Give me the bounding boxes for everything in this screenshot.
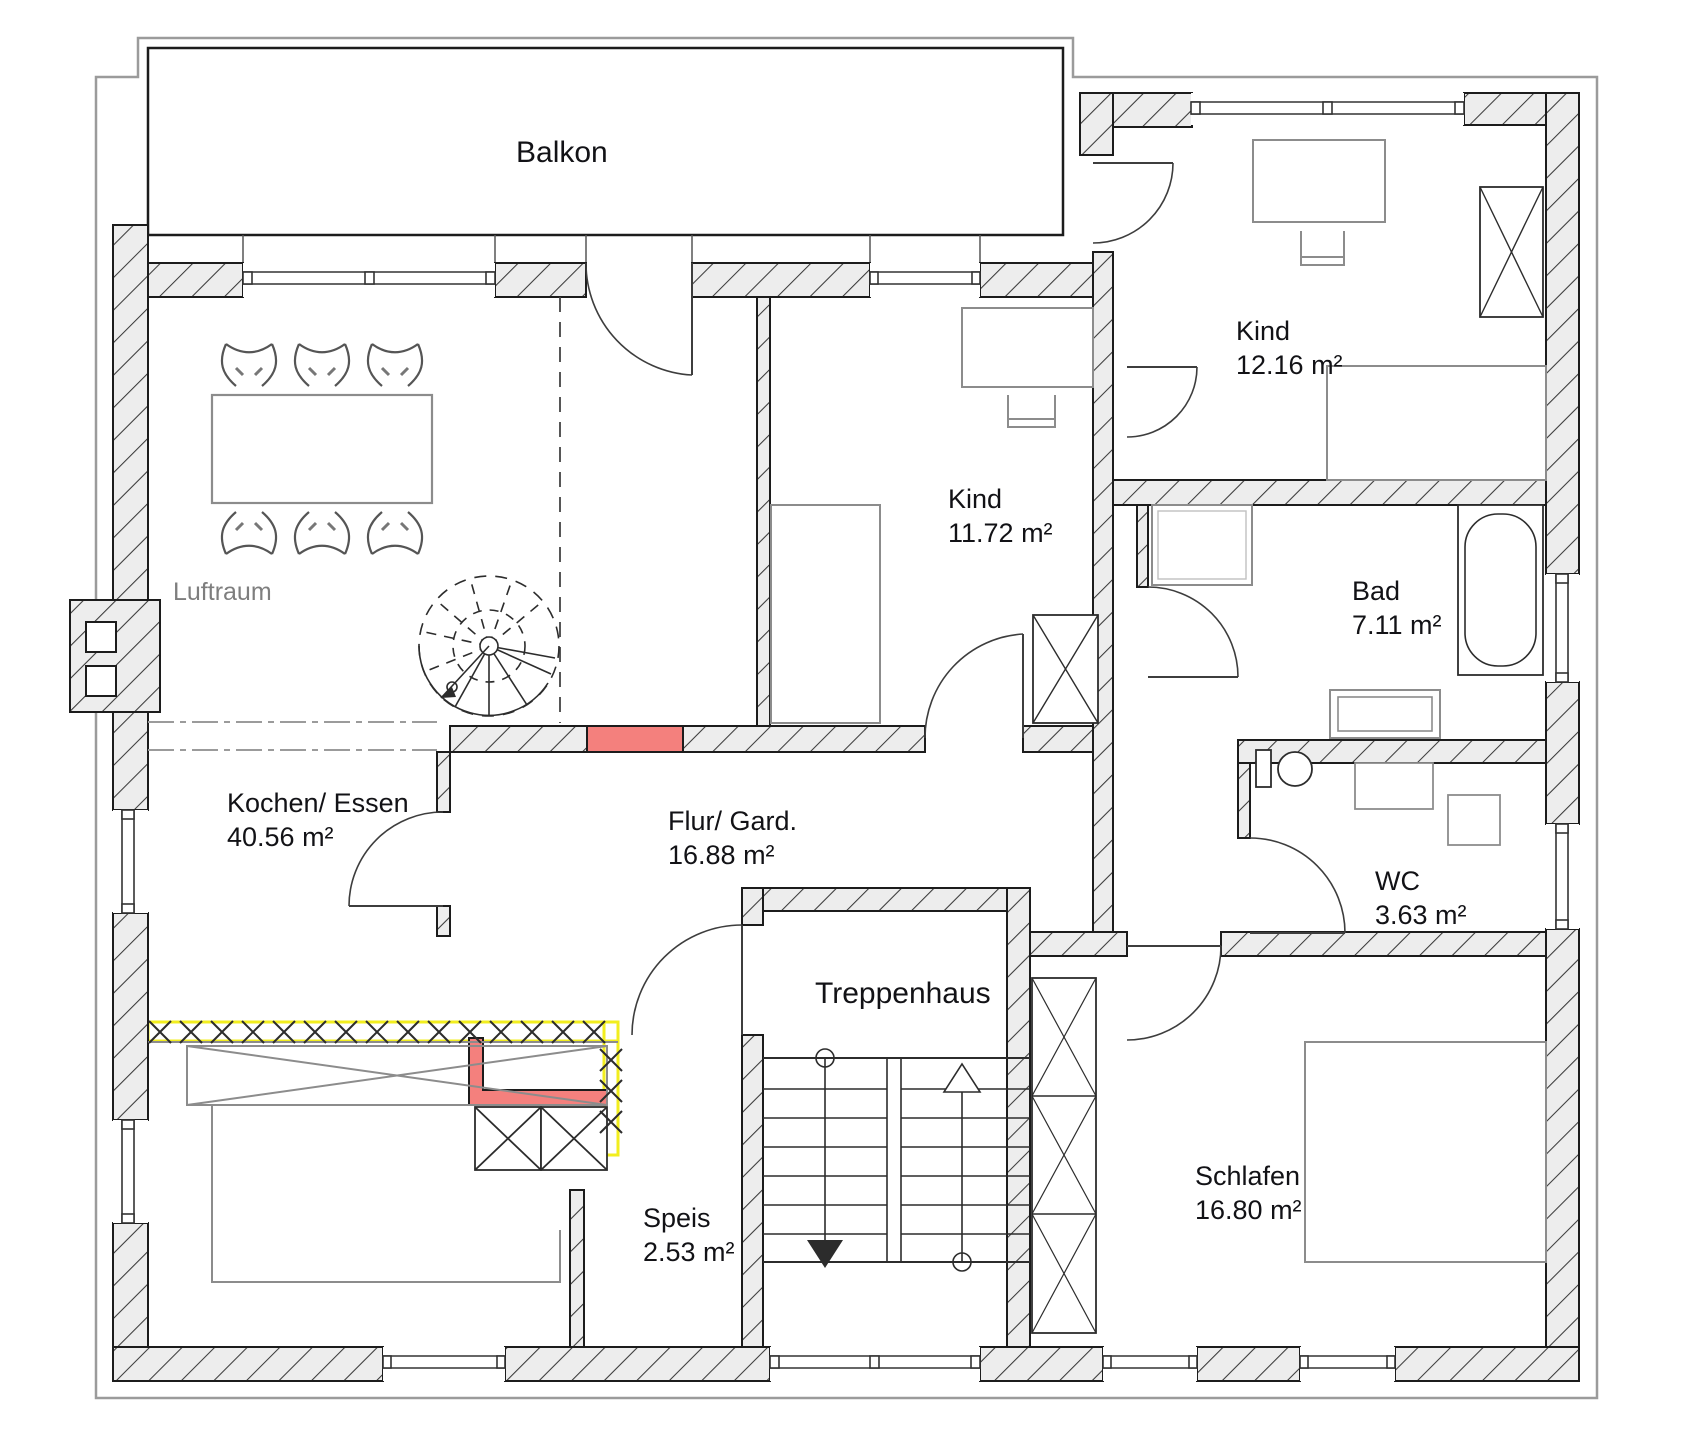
door-bad (1148, 587, 1238, 677)
void-markers (148, 297, 560, 750)
kitchen-cabinets (475, 1107, 607, 1170)
main-stair (763, 1049, 1030, 1271)
bad-fixtures (1152, 505, 1543, 738)
room-area-wc: 3.63 m² (1375, 900, 1467, 930)
highlighted-wall-red[interactable] (469, 726, 683, 1105)
room-label-wc: WC (1375, 866, 1420, 896)
room-label-schlafen: Schlafen (1195, 1161, 1300, 1191)
room-area-kind1: 12.16 m² (1236, 350, 1343, 380)
dining-set (212, 344, 432, 554)
room-area-kind2: 11.72 m² (948, 518, 1053, 548)
door-balcony (586, 263, 692, 375)
kind2-furniture (771, 308, 1098, 723)
room-label-kind2: Kind (948, 484, 1002, 514)
floor-plan-canvas[interactable]: Balkon Kind 12.16 m² Kind 11.72 m² Bad 7… (0, 0, 1682, 1434)
room-area-kochen: 40.56 m² (227, 822, 334, 852)
door-hall-top (1093, 163, 1173, 243)
room-label-bad: Bad (1352, 576, 1400, 606)
door-schlafen (1127, 946, 1221, 1040)
floor-plan-page: Balkon Kind 12.16 m² Kind 11.72 m² Bad 7… (0, 0, 1682, 1434)
wc-fixtures (1256, 750, 1500, 845)
room-area-schlafen: 16.80 m² (1195, 1195, 1302, 1225)
door-kind1 (1127, 367, 1197, 437)
room-area-bad: 7.11 m² (1352, 610, 1442, 640)
room-label-treppenhaus: Treppenhaus (815, 977, 991, 1010)
room-label-kochen: Kochen/ Essen (227, 788, 409, 818)
room-label-flur: Flur/ Gard. (668, 806, 797, 836)
door-kochen (349, 812, 443, 906)
room-area-speis: 2.53 m² (643, 1237, 735, 1267)
schlafen-furniture (1032, 978, 1546, 1333)
room-label-balkon: Balkon (516, 136, 608, 169)
spiral-stair (419, 576, 559, 716)
room-label-kind1: Kind (1236, 316, 1290, 346)
kind1-furniture (1253, 140, 1546, 480)
door-treppenhaus (632, 925, 742, 1035)
room-area-flur: 16.88 m² (668, 840, 775, 870)
door-wc (1250, 838, 1345, 933)
room-label-speis: Speis (643, 1203, 711, 1233)
room-label-luftraum: Luftraum (173, 578, 272, 606)
door-kind2 (925, 634, 1023, 738)
